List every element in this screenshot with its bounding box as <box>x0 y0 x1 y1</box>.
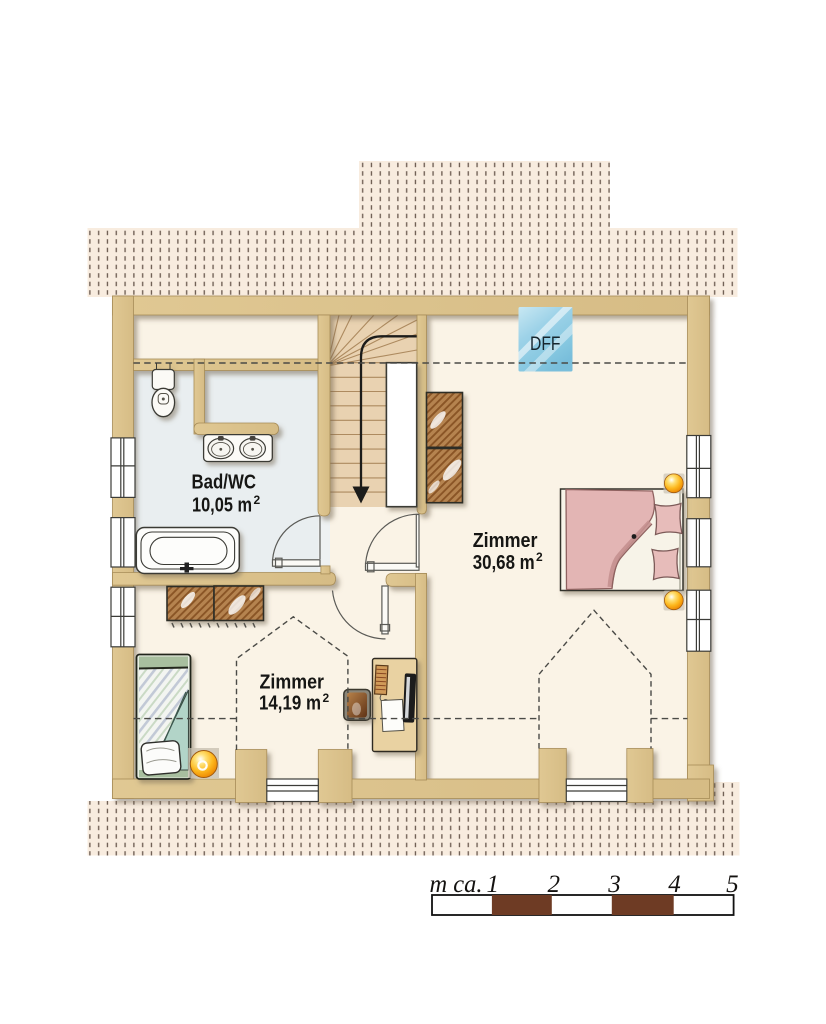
svg-text:14,19 m: 14,19 m <box>259 692 321 715</box>
svg-text:2: 2 <box>323 691 330 705</box>
svg-text:m ca.: m ca. <box>430 871 483 898</box>
svg-text:10,05 m: 10,05 m <box>192 495 252 517</box>
svg-text:4: 4 <box>668 871 681 898</box>
svg-text:5: 5 <box>726 871 739 898</box>
svg-text:DFF: DFF <box>530 334 561 355</box>
svg-text:1: 1 <box>486 871 499 898</box>
svg-text:Zimmer: Zimmer <box>260 671 325 694</box>
svg-text:Bad/WC: Bad/WC <box>192 471 257 493</box>
svg-text:3: 3 <box>607 871 621 898</box>
svg-text:30,68 m: 30,68 m <box>473 551 535 574</box>
svg-text:2: 2 <box>536 550 543 564</box>
svg-text:2: 2 <box>548 871 561 898</box>
svg-text:Zimmer: Zimmer <box>473 529 538 552</box>
svg-text:2: 2 <box>254 493 261 507</box>
